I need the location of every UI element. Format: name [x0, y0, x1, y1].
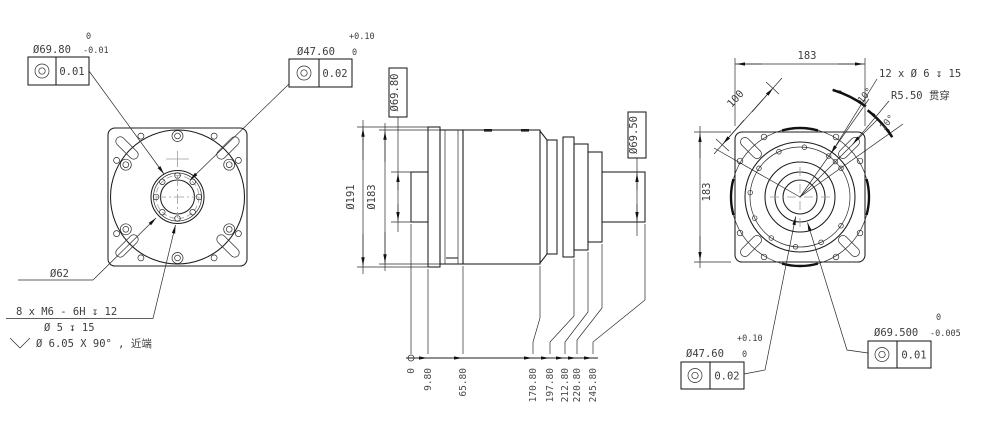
side-dim-body: Ø183	[366, 123, 440, 271]
side-dim-flange: Ø191	[345, 120, 428, 274]
rear-spigot-tol-lower: -0.005	[930, 329, 961, 339]
rear-height-dim: 183	[701, 183, 713, 202]
front-view	[108, 128, 247, 266]
ordinate-label: 170.80	[528, 368, 539, 403]
ordinate-label: 197.80	[545, 368, 556, 403]
front-spigot-tol-lower: -0.01	[83, 46, 109, 56]
rear-bore-fcf-value: 0.02	[714, 371, 739, 383]
side-body-dim: Ø183	[366, 184, 378, 209]
ordinate-label: 65.80	[458, 368, 469, 397]
side-flange-dim: Ø191	[345, 184, 357, 209]
concentricity-icon	[297, 66, 311, 80]
front-note-csink: Ø 6.05 X 90° , 近端	[36, 337, 152, 350]
ordinate-label: 9.80	[423, 368, 434, 391]
rear-spigot-tol-upper: 0	[936, 313, 941, 323]
front-bore-tol-lower: 0	[352, 48, 357, 58]
rear-holes-note: 12 x Ø 6 ↧ 15	[831, 68, 961, 154]
rear-spigot-dim: Ø69.500	[874, 327, 918, 339]
side-dim-pilot: Ø69.80	[389, 68, 411, 232]
front-note-thread: 8 x M6 - 6H ↧ 12	[16, 306, 117, 318]
rear-view: 10° 10° 12 x Ø 6 ↧ 15 R5.50 贯穿 183 183	[694, 50, 961, 268]
rear-spigot-fcf-value: 0.01	[901, 350, 926, 362]
side-pilot-dim: Ø69.80	[389, 74, 401, 112]
ordinate-label: 245.80	[588, 368, 599, 403]
ordinate-label: 0	[406, 368, 417, 374]
rear-bore-tol-lower: 0	[742, 350, 747, 360]
concentricity-icon	[875, 348, 889, 362]
rear-diag-dim: 100	[725, 88, 747, 110]
rear-bore-dim: Ø47.60	[686, 348, 724, 360]
front-spigot-tol-upper: 0	[86, 32, 91, 42]
concentricity-icon	[688, 369, 702, 383]
front-spigot-dim: Ø69.80	[33, 44, 71, 56]
front-bore-fcf: 0.02	[289, 59, 352, 87]
rear-bore-fcf: 0.02	[681, 362, 744, 389]
rear-spigot-fcf: 0.01	[868, 341, 931, 368]
ordinate-label: 212.80	[560, 368, 571, 403]
front-bore-dim: Ø47.60	[297, 46, 335, 58]
side-dim-shaft: Ø69.50	[628, 112, 646, 236]
engineering-drawing: Ø69.80 0 -0.01 0.01 Ø47.60 +0.10 0 0.02	[0, 0, 983, 426]
rear-spigot-annotation: 0 Ø69.500 -0.005 0.01	[808, 223, 961, 369]
side-part-outline	[411, 127, 645, 267]
rear-dim-diag: 100	[714, 78, 782, 154]
rear-bore-tol-upper: +0.10	[737, 334, 763, 344]
front-spigot-fcf-value: 0.01	[59, 66, 84, 78]
drawing-canvas: Ø69.80 0 -0.01 0.01 Ø47.60 +0.10 0 0.02	[0, 0, 983, 426]
rear-note-holes: 12 x Ø 6 ↧ 15	[879, 68, 961, 80]
front-bolt-circle-dim: Ø62	[50, 268, 69, 280]
rear-width-dim: 183	[798, 50, 817, 62]
front-bore-fcf-value: 0.02	[322, 68, 347, 80]
front-bore-tol-upper: +0.10	[349, 32, 375, 42]
front-note-drill: Ø 5 ↧ 15	[44, 322, 95, 334]
rear-dim-width: 183	[735, 50, 865, 126]
side-ordinate-dims: 0 9.80 65.80 170.80 197.80 212.80 220.80…	[406, 224, 645, 402]
ordinate-label: 220.80	[572, 368, 583, 403]
rear-note-slot: R5.50 贯穿	[891, 89, 950, 102]
side-shaft-dim: Ø69.50	[628, 116, 640, 154]
side-view: Ø191 Ø183 Ø69.80 Ø69.50	[345, 68, 646, 402]
countersink-icon	[10, 338, 30, 348]
front-spigot-fcf: 0.01	[28, 57, 89, 85]
front-spigot-annotation: Ø69.80 0 -0.01 0.01	[28, 32, 164, 174]
concentricity-icon	[35, 64, 49, 78]
front-thread-note: 8 x M6 - 6H ↧ 12 Ø 5 ↧ 15 Ø 6.05 X 90° ,…	[6, 225, 176, 350]
